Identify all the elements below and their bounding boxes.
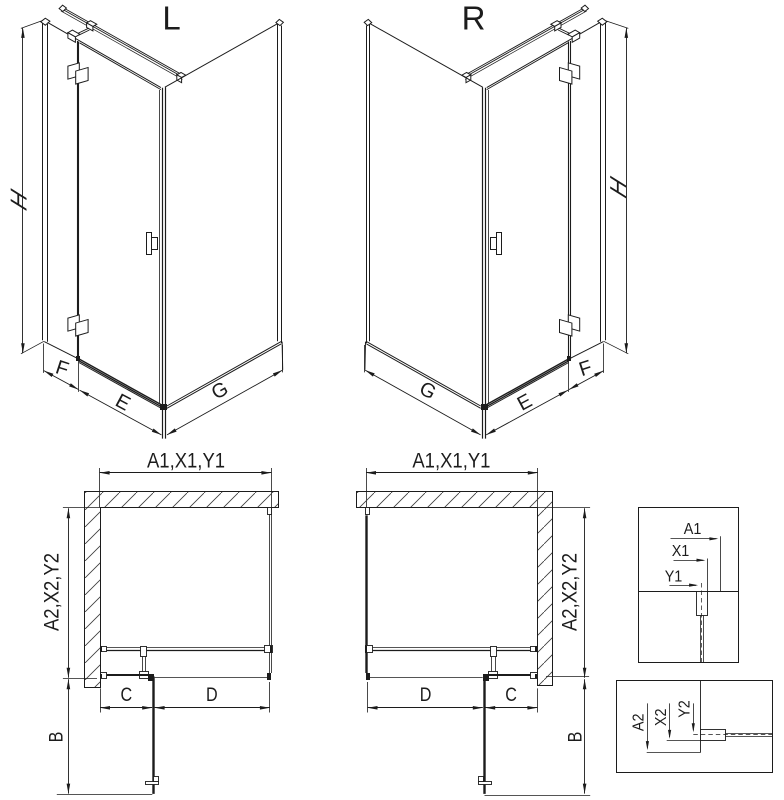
- svg-text:X2: X2: [652, 708, 670, 726]
- svg-text:R: R: [462, 0, 486, 37]
- svg-text:B: B: [564, 732, 586, 743]
- svg-text:D: D: [206, 684, 218, 706]
- svg-text:X1: X1: [672, 542, 690, 560]
- svg-text:A2: A2: [630, 713, 648, 731]
- svg-text:L: L: [162, 0, 180, 37]
- svg-text:B: B: [45, 732, 67, 743]
- svg-text:A1,X1,Y1: A1,X1,Y1: [412, 449, 490, 473]
- svg-text:A1,X1,Y1: A1,X1,Y1: [147, 449, 225, 473]
- svg-text:A1: A1: [684, 520, 702, 538]
- svg-text:A2,X2,Y2: A2,X2,Y2: [558, 553, 582, 631]
- svg-text:A2,X2,Y2: A2,X2,Y2: [40, 553, 64, 631]
- svg-text:C: C: [505, 684, 517, 706]
- svg-text:D: D: [420, 684, 432, 706]
- svg-text:Y1: Y1: [665, 568, 683, 586]
- svg-text:Y2: Y2: [676, 700, 694, 718]
- svg-text:C: C: [120, 684, 132, 706]
